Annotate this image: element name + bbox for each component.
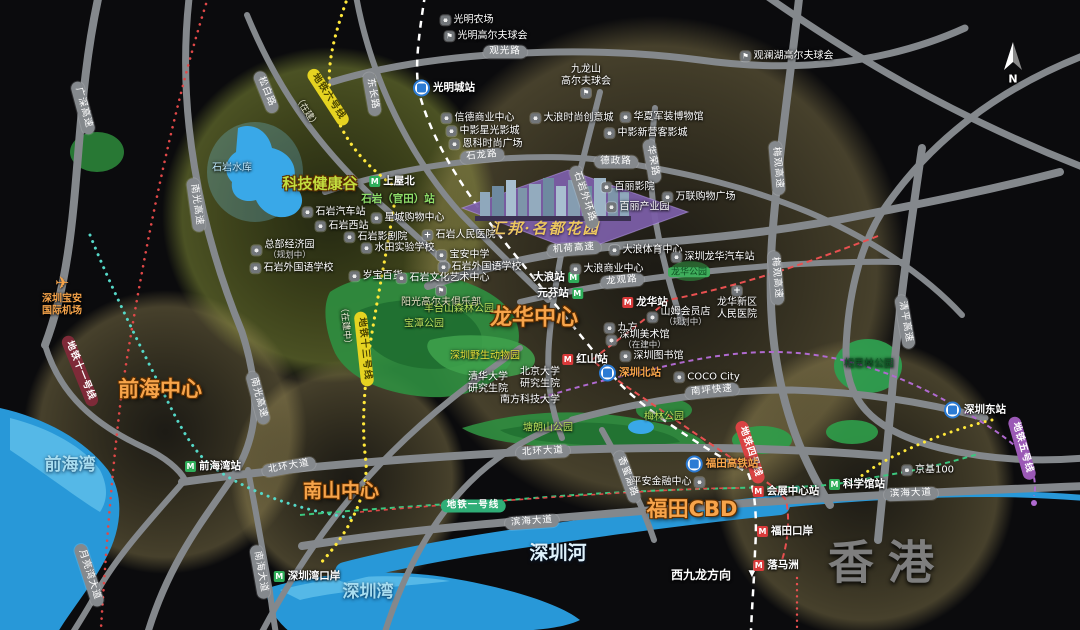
water-label: 前海湾 <box>45 456 96 476</box>
station-name: 红山站 <box>576 353 608 365</box>
poi-name: 石岩文化艺术中心 <box>410 272 490 283</box>
labels-layer: 汇邦·名都花园 科技健康谷前海中心南山中心龙华中心福田CBD香港前海湾深圳湾深圳… <box>0 0 1080 630</box>
map-note: 西九龙方向 <box>671 569 731 583</box>
poi-label: 塘朗山公园 <box>523 422 573 434</box>
poi-icon <box>610 245 620 255</box>
poi-icon <box>350 271 360 281</box>
poi-label: 宝潭公园 <box>404 318 444 330</box>
road-label: 龙观路 <box>600 273 644 290</box>
poi-label: 大浪商业中心 <box>571 263 644 275</box>
road-label: 东长路 <box>362 71 382 116</box>
poi-name: 中影星光影城 <box>460 125 520 136</box>
poi-name: 华夏军装博物馆 <box>634 111 704 122</box>
poi-icon <box>672 252 682 262</box>
metro-icon-green: M <box>572 288 583 299</box>
poi-label: 万联购物广场 <box>663 191 736 203</box>
metro-line-label: 地铁十一号线 <box>60 334 100 408</box>
poi-label: 信德商业中心 <box>442 112 515 124</box>
station-label: 深圳北站 <box>599 365 661 382</box>
metro-icon-red: M <box>562 354 573 365</box>
poi-name: 平安金融中心 <box>632 476 692 487</box>
rail-station-icon <box>686 456 703 473</box>
poi-label: +石岩人民医院 <box>423 229 496 241</box>
region-label: 科技健康谷 <box>282 175 357 192</box>
station-label: M科学馆站 <box>829 478 885 490</box>
water-label: 深圳湾 <box>343 583 394 603</box>
station-label: 光明城站 <box>413 80 475 97</box>
region-label: 福田CBD <box>647 497 738 521</box>
poi-icon <box>621 351 631 361</box>
poi-icon <box>345 232 355 242</box>
poi-label: 岁宝百货 <box>350 270 403 282</box>
metro-icon-green: M <box>274 571 285 582</box>
poi-label: 平安金融中心 <box>632 476 705 488</box>
station-name: 科学馆站 <box>843 478 885 490</box>
metro-icon-red: M <box>753 560 764 571</box>
poi-label: 石岩文化艺术中心 <box>397 272 490 284</box>
station-label: 元芬站M <box>537 287 583 299</box>
poi-name: 龙华公园 <box>668 267 710 277</box>
station-name: 深圳东站 <box>964 404 1006 416</box>
metro-icon-red: M <box>622 297 633 308</box>
poi-name: 清华大学 研究生院 <box>468 372 508 395</box>
station-label: 深圳东站 <box>944 402 1006 419</box>
road-label: 北环大道 <box>261 456 316 478</box>
poi-label: 九龙山 高尔夫球会⚑ <box>561 64 611 98</box>
poi-name: 宝潭公园 <box>404 318 444 329</box>
poi-icon <box>441 15 451 25</box>
water-label: 深圳河 <box>529 543 586 565</box>
poi-label: 山姆会员店（规划中） <box>648 306 711 327</box>
poi-label: 石岩外国语学校 <box>251 262 334 274</box>
poi-name: 深圳龙华汽车站 <box>685 251 755 262</box>
map-note: N <box>1008 74 1017 87</box>
poi-icon <box>362 243 372 253</box>
poi-label: ⚑观澜湖高尔夫球会 <box>741 50 834 62</box>
poi-name: 京基100 <box>915 464 954 475</box>
poi-label: ✈深圳宝安 国际机场 <box>42 276 82 317</box>
poi-name: 大浪商业中心 <box>584 263 644 274</box>
poi-icon <box>674 372 684 382</box>
poi-icon <box>531 113 541 123</box>
poi-name: 九龙山 高尔夫球会 <box>561 64 611 87</box>
road-label: 月亮湾大道 <box>73 542 105 607</box>
poi-name: 深圳美术馆 <box>620 329 670 340</box>
metro-icon-green: M <box>829 479 840 490</box>
poi-label: 水田实验学校 <box>362 242 435 254</box>
poi-icon <box>605 128 615 138</box>
station-name: 落马洲 <box>767 559 799 571</box>
station-label: M上屋北 <box>369 175 415 187</box>
poi-label: 深圳图书馆 <box>621 350 684 362</box>
road-label: 梅观高速 <box>768 141 786 196</box>
airplane-icon: ✈ <box>55 276 69 293</box>
poi-status-note: （规划中） <box>661 318 711 328</box>
poi-label: 大浪时尚创意城 <box>531 112 614 124</box>
road-label: 观光路 <box>483 46 527 59</box>
station-name: 石岩（官田）站 <box>361 193 435 205</box>
golf-icon: ⚑ <box>741 51 751 61</box>
poi-name: 百丽产业园 <box>620 201 670 212</box>
poi-label: 华夏军装博物馆 <box>621 111 704 123</box>
poi-name: 石岩外国语学校 <box>264 262 334 273</box>
poi-icon <box>450 139 460 149</box>
station-name: 福田高铁站 <box>706 458 759 470</box>
station-name: 福田口岸 <box>771 525 813 537</box>
road-label: 梅观高速 <box>767 251 785 306</box>
road-label: 南光高速 <box>186 177 206 232</box>
poi-name: 南方科技大学 <box>500 394 560 405</box>
poi-label: 深圳美术馆（在建中） <box>607 329 670 350</box>
poi-name: 山姆会员店 <box>661 306 711 317</box>
poi-status-note: （规划中） <box>265 251 315 261</box>
metro-line-label: 地铁一号线 <box>441 500 506 513</box>
poi-name: 信德商业中心 <box>455 112 515 123</box>
poi-name: 大浪时尚创意城 <box>544 112 614 123</box>
golf-icon: ⚑ <box>581 88 591 98</box>
poi-name: 万联购物广场 <box>676 191 736 202</box>
poi-label: 百丽影院 <box>602 181 655 193</box>
poi-label: 宝安中学 <box>437 249 490 261</box>
poi-name: 水田实验学校 <box>375 242 435 253</box>
poi-icon <box>397 273 407 283</box>
road-label: 华荣路 <box>642 138 662 183</box>
poi-label: 清华大学 研究生院 <box>468 372 508 395</box>
poi-label: 中影新营客影城 <box>605 127 688 139</box>
poi-icon <box>437 250 447 260</box>
rail-station-icon <box>599 365 616 382</box>
region-label: 香港 <box>828 537 948 590</box>
road-label: 机荷高速 <box>547 241 602 258</box>
poi-label: 相思林公园 <box>844 358 894 370</box>
region-label: 前海中心 <box>118 377 202 401</box>
poi-label: COCO City <box>674 371 740 383</box>
road-label: 清平高速 <box>894 294 916 349</box>
poi-name: 石岩人民医院 <box>436 229 496 240</box>
poi-icon <box>695 477 705 487</box>
poi-label: 总部经济园（规划中） <box>252 239 315 260</box>
poi-label: 京基100 <box>902 464 954 476</box>
poi-name: 深圳宝安 国际机场 <box>42 294 82 317</box>
metro-icon-green: M <box>369 176 380 187</box>
poi-name: 相思林公园 <box>844 358 894 369</box>
hospital-icon: + <box>732 286 742 296</box>
poi-label: 光明农场 <box>441 14 494 26</box>
road-label: 南海大道 <box>249 544 271 599</box>
poi-name: COCO City <box>687 371 740 382</box>
poi-name: 深圳野生动物园 <box>450 350 520 361</box>
poi-name: 光明农场 <box>454 14 494 25</box>
poi-label: ⚑光明高尔夫球会 <box>445 30 528 42</box>
poi-label: 南方科技大学 <box>500 394 560 406</box>
poi-label: 百丽产业园 <box>607 201 670 213</box>
station-name: 光明城站 <box>433 82 475 94</box>
poi-name: 星城购物中心 <box>385 212 445 223</box>
poi-icon <box>663 192 673 202</box>
poi-icon <box>607 202 617 212</box>
poi-name: 梅林公园 <box>644 411 684 422</box>
poi-name: 光明高尔夫球会 <box>458 30 528 41</box>
road-label: 松白路 <box>252 69 280 114</box>
station-name: 深圳北站 <box>619 367 661 379</box>
road-label: 石龙路 <box>460 147 505 164</box>
station-label: 石岩（官田）站 <box>361 193 435 205</box>
poi-icon <box>372 213 382 223</box>
poi-icon <box>902 465 912 475</box>
station-label: M福田口岸 <box>757 525 813 537</box>
property-name-label: 汇邦·名都花园 <box>490 218 599 239</box>
map-root: { "map": { "property": { "name": "汇邦·名都花… <box>0 0 1080 630</box>
poi-name: 羊台山森林公园 <box>424 303 494 314</box>
poi-name: 宝安中学 <box>450 249 490 260</box>
poi-label: 龙华公园 <box>668 266 710 278</box>
poi-label: 石岩水库 <box>212 162 252 174</box>
poi-label: 石岩汽车站 <box>303 206 366 218</box>
poi-icon <box>621 112 631 122</box>
poi-name: 总部经济园 <box>265 239 315 250</box>
poi-name: 石岩汽车站 <box>316 206 366 217</box>
poi-name: 龙华新区 人民医院 <box>717 297 757 320</box>
poi-name: 中影新营客影城 <box>618 127 688 138</box>
metro-icon-red: M <box>757 526 768 537</box>
road-label: 滨海大道 <box>884 487 938 502</box>
golf-icon: ⚑ <box>445 31 455 41</box>
station-label: M深圳湾口岸 <box>274 570 341 582</box>
poi-name: 北京大学 研究生院 <box>520 367 560 390</box>
poi-name: 石岩外国语学校 <box>452 261 522 272</box>
road-label: 北环大道 <box>516 444 571 460</box>
rail-station-icon <box>413 80 430 97</box>
station-name: 大浪站 <box>533 271 565 283</box>
road-label: 南光高速 <box>245 370 271 426</box>
map-note: （在建） <box>292 94 320 130</box>
poi-icon <box>442 113 452 123</box>
station-name: 元芬站 <box>537 287 569 299</box>
poi-icon <box>251 263 261 273</box>
road-label: 德政路 <box>594 156 638 169</box>
poi-icon <box>607 335 617 345</box>
poi-label: 恩科时尚广场 <box>450 138 523 150</box>
poi-label: 北京大学 研究生院 <box>520 367 560 390</box>
station-label: M落马洲 <box>753 559 799 571</box>
poi-icon <box>303 207 313 217</box>
station-label: M会展中心站 <box>753 485 820 497</box>
poi-name: 塘朗山公园 <box>523 422 573 433</box>
poi-name: 深圳图书馆 <box>634 350 684 361</box>
station-label: M红山站 <box>562 353 608 365</box>
poi-name: 百丽影院 <box>615 181 655 192</box>
poi-name: 石岩水库 <box>212 162 252 173</box>
poi-label: 梅林公园 <box>644 411 684 423</box>
poi-name: 石岩影剧院 <box>358 231 408 242</box>
poi-label: 石岩影剧院 <box>345 231 408 243</box>
poi-status-note: （在建中） <box>620 341 670 351</box>
station-label: 福田高铁站 <box>686 456 759 473</box>
hospital-icon: + <box>423 230 433 240</box>
poi-label: 深圳龙华汽车站 <box>672 251 755 263</box>
region-label: 龙华中心 <box>490 305 578 330</box>
poi-label: +龙华新区 人民医院 <box>717 286 757 320</box>
poi-label: 深圳野生动物园 <box>450 350 520 362</box>
poi-icon <box>648 312 658 322</box>
region-label: 南山中心 <box>303 481 379 503</box>
road-label: 广深高速 <box>70 80 96 136</box>
poi-label: 石岩西站 <box>316 220 369 232</box>
poi-name: 恩科时尚广场 <box>463 138 523 149</box>
poi-label: 星城购物中心 <box>372 212 445 224</box>
poi-icon <box>602 182 612 192</box>
poi-name: 观澜湖高尔夫球会 <box>754 50 834 61</box>
poi-label: 中影星光影城 <box>447 125 520 137</box>
metro-icon-green: M <box>185 461 196 472</box>
poi-icon <box>252 245 262 255</box>
poi-icon <box>439 262 449 272</box>
metro-icon-red: M <box>753 486 764 497</box>
poi-label: 羊台山森林公园 <box>424 303 494 315</box>
metro-line-label: 地铁四号线 <box>734 419 766 484</box>
metro-line-label: 地铁十三号线 <box>354 311 375 387</box>
station-name: 上屋北 <box>383 175 415 187</box>
poi-label: 石岩外国语学校 <box>439 261 522 273</box>
poi-icon <box>316 221 326 231</box>
poi-icon <box>447 126 457 136</box>
road-label: 滨海大道 <box>505 514 560 531</box>
road-label: 南坪快速 <box>685 382 740 400</box>
map-note: （在建中） <box>338 303 353 349</box>
station-name: 会展中心站 <box>767 485 820 497</box>
poi-name: 石岩西站 <box>329 220 369 231</box>
station-name: 深圳湾口岸 <box>288 570 341 582</box>
rail-station-icon <box>944 402 961 419</box>
poi-icon <box>571 264 581 274</box>
golf-icon: ⚑ <box>436 286 446 296</box>
station-label: M前海湾站 <box>185 460 241 472</box>
metro-line-label: 地铁五号线 <box>1007 415 1037 481</box>
station-name: 前海湾站 <box>199 460 241 472</box>
